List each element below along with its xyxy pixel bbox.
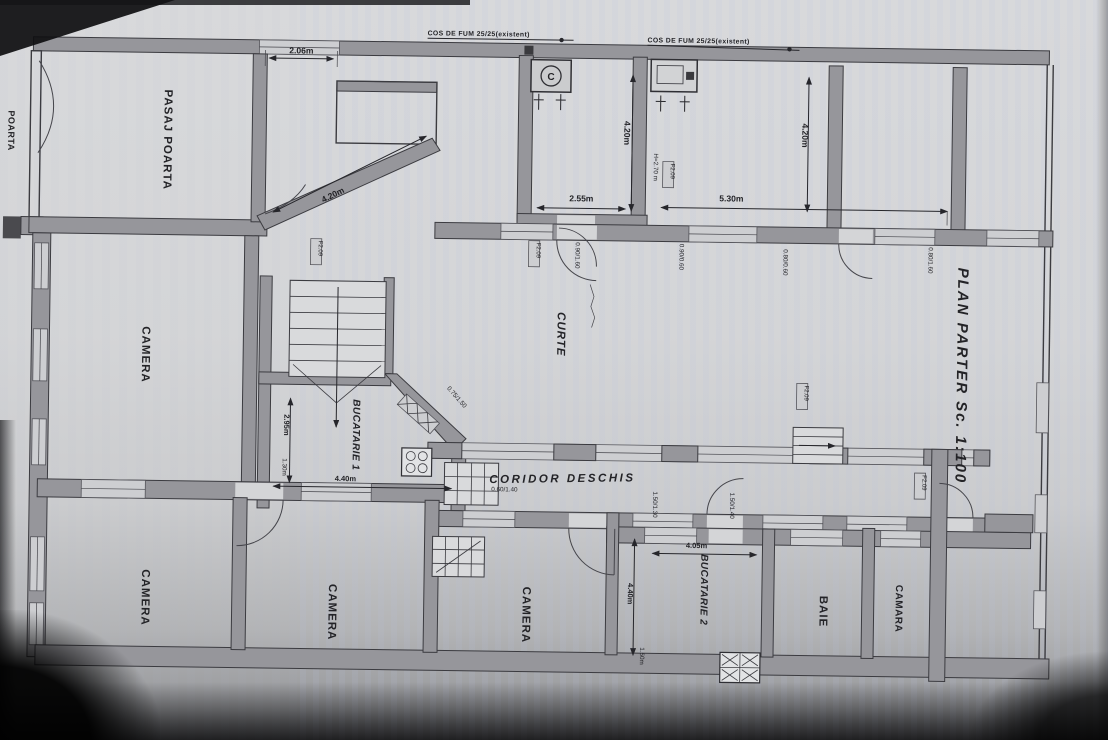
dim-window-1: 0.90/1.60	[573, 242, 580, 269]
dim-door-5: 1.50/1.30	[651, 491, 658, 518]
dim-4-20-right: 4.20m	[800, 123, 810, 148]
floor-plan-drawing: C	[0, 0, 1108, 740]
main-stairs-icon	[288, 280, 386, 427]
sink-icon	[651, 59, 697, 92]
room-label-poarta: POARTA	[6, 110, 17, 150]
dim-4-20-court: 4.20m	[622, 121, 632, 146]
gate-pillar	[3, 216, 21, 238]
court-steps-icon	[793, 427, 843, 464]
photo-edge-top	[0, 0, 470, 5]
corridor-window-wall	[428, 442, 990, 466]
photo-edge-bottom	[0, 682, 1108, 740]
photo-edge-right	[1096, 0, 1108, 740]
tag-f209-4: F2.09	[803, 385, 809, 401]
tag-f209-1: F2.09	[317, 241, 323, 257]
tag-f209-5: F2.09	[920, 475, 926, 491]
room-label-pasaj-poarta: PASAJ POARTA	[160, 90, 173, 191]
room-label-bucatarie-1: BUCATARIE 1	[350, 399, 362, 470]
dim-door-6: 1.50/1.40	[728, 492, 735, 519]
dim-5-30: 5.30m	[719, 193, 744, 203]
floorplan-photo: C	[0, 0, 1108, 740]
handwritten-note-mark	[590, 285, 596, 328]
dim-h-2-70: H=2.70 m	[652, 153, 659, 181]
room-label-curte: CURTE	[554, 312, 567, 357]
chimney-note-right: COS DE FUM 25/25(existent)	[648, 37, 750, 45]
boiler-label: C	[547, 72, 554, 83]
dim-window-2: 0.90/0.60	[677, 244, 684, 271]
boiler-pipes-icon	[534, 94, 690, 112]
stove-kitchen1-icon	[401, 448, 431, 476]
dim-window-4: 0.80/1.60	[926, 247, 933, 274]
stove-kitchen2-icon	[720, 652, 760, 683]
gate-passage-left-wall	[29, 51, 41, 221]
room-label-baie: BAIE	[816, 596, 828, 628]
room-label-coridor-deschis: CORIDOR DESCHIS	[489, 472, 635, 486]
room-label-camara: CAMARA	[892, 585, 904, 633]
dim-4-05: 4.05m	[686, 541, 708, 550]
photo-corner-bottom-right	[968, 650, 1108, 740]
room-label-camera-3: CAMERA	[325, 584, 338, 641]
dim-1-30: 1.30m	[280, 458, 287, 476]
room-label-camera-4: CAMERA	[519, 587, 532, 644]
boiler-icon: C	[531, 60, 571, 93]
dim-1-50: 1.50m	[638, 647, 645, 665]
dim-step: 0.60/1.40	[491, 486, 518, 493]
tag-f209-2: F2.09	[535, 243, 541, 259]
dim-2-95: 2.95m	[282, 414, 291, 436]
plan-title: PLAN PARTER Sc. 1:100	[951, 268, 971, 485]
dim-4-40-kitchen1: 4.40m	[335, 474, 357, 483]
dim-window-3: 0.80/0.60	[781, 249, 788, 276]
flue-mark	[524, 46, 533, 55]
dim-2-55: 2.55m	[569, 193, 594, 203]
lower-steps-icon	[432, 536, 485, 577]
photo-corner-bottom-left	[0, 610, 160, 740]
tag-f209-3: F2.09	[669, 164, 675, 180]
room-label-bucatarie-2: BUCATARIE 2	[697, 554, 709, 625]
dim-4-40-camera: 4.40m	[626, 583, 635, 605]
chimney-note-left: COS DE FUM 25/25(existent)	[428, 30, 530, 38]
diagonal-wall	[257, 136, 440, 233]
room-label-camera-1: CAMERA	[139, 326, 152, 383]
dim-2-06: 2.06m	[289, 45, 314, 55]
dim-window-7: 0.75/1.50	[445, 385, 468, 410]
bottom-wall	[35, 645, 1049, 679]
